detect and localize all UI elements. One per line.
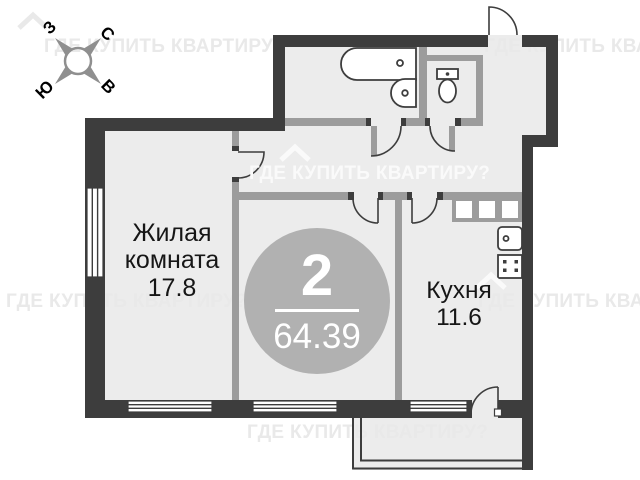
- sink-icon: [391, 79, 416, 107]
- stove-icon: [498, 255, 522, 278]
- balcony-floor: [353, 418, 533, 470]
- living-room-name: Жилая комната: [104, 220, 240, 274]
- kitchen-area: 11.6: [396, 305, 522, 331]
- toilet-icon: [437, 69, 458, 103]
- window-icon: [410, 401, 467, 412]
- total-area-badge: 2 64.39: [244, 228, 390, 374]
- kitchen-label: Кухня 11.6: [396, 278, 522, 332]
- total-area-value: 64.39: [273, 319, 361, 354]
- room-count: 2: [301, 248, 333, 303]
- window-icon: [128, 401, 212, 412]
- kitchen-sink-icon: [498, 227, 522, 250]
- badge-divider: [275, 309, 359, 312]
- kitchen-name: Кухня: [396, 278, 522, 304]
- window-icon: [253, 401, 337, 412]
- entrance-door-swing-icon: [489, 7, 517, 35]
- living-room-area: 17.8: [104, 275, 240, 302]
- compass-rose-icon: [55, 38, 101, 84]
- bathtub-icon: [341, 48, 416, 80]
- kitchen-counter-icon: [452, 197, 522, 222]
- living-room-label: Жилая комната 17.8: [104, 220, 240, 302]
- window-icon: [87, 188, 103, 277]
- floor-plan-page: ГДЕ КУПИТЬ КВАРТИРУ? ГДЕ КУПИТЬ КВАРТИРУ…: [0, 0, 640, 480]
